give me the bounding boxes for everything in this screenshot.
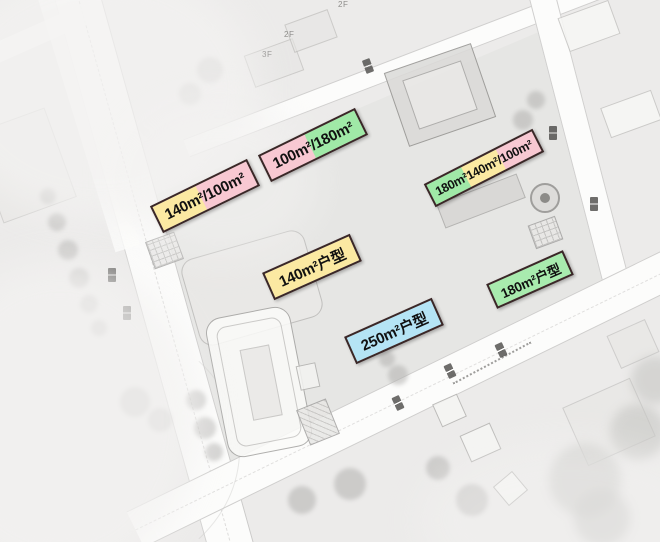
building-outline: [460, 423, 502, 463]
site-plan-map: 3F 2F 2F 140m²/100m² 100m²/180m² 180m²14…: [0, 0, 660, 542]
tree-canopy: [379, 351, 395, 367]
tree-canopy: [80, 295, 98, 313]
tree-canopy: [194, 417, 216, 439]
tree-canopy: [288, 486, 316, 514]
road-name-smudge: [549, 126, 557, 140]
floor-count-annotation: 2F: [284, 30, 294, 39]
tree-canopy: [334, 468, 366, 500]
tree-canopy: [186, 390, 206, 410]
tree-canopy: [40, 188, 56, 204]
tree-canopy: [426, 456, 450, 480]
tree-canopy: [179, 83, 201, 105]
round-building: [530, 183, 560, 213]
tree-canopy: [513, 110, 533, 130]
tree-canopy: [574, 490, 630, 542]
tree-canopy: [527, 91, 545, 109]
road-name-smudge: [590, 197, 598, 211]
tree-canopy: [48, 213, 66, 231]
tree-canopy: [197, 57, 223, 83]
tree-canopy: [91, 320, 107, 336]
building-outline: [600, 90, 660, 139]
tree-canopy: [456, 484, 488, 516]
road-name-smudge: [123, 306, 131, 320]
road-name-smudge: [108, 268, 116, 282]
tree-canopy: [205, 443, 223, 461]
tree-canopy: [610, 404, 660, 460]
floor-count-annotation: 3F: [262, 50, 272, 59]
tree-canopy: [148, 408, 172, 432]
tree-canopy: [388, 365, 408, 385]
tree-canopy: [120, 387, 150, 417]
building-outline: [493, 471, 528, 506]
floor-count-annotation: 2F: [338, 0, 348, 9]
tree-canopy: [58, 240, 78, 260]
building-outline: [0, 108, 77, 224]
tree-canopy: [69, 268, 89, 288]
